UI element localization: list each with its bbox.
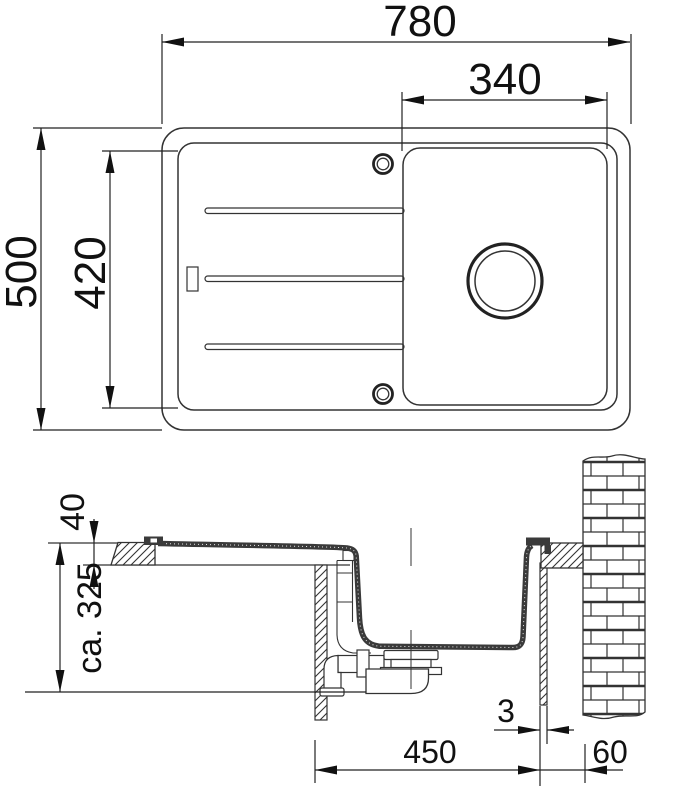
top-view bbox=[162, 128, 630, 430]
dim-label-gap: 3 bbox=[497, 693, 515, 729]
section-view bbox=[48, 455, 645, 720]
dim-label-cabinet-width: 450 bbox=[403, 734, 456, 770]
dimension-450-60: 450 60 bbox=[315, 734, 628, 783]
wall bbox=[583, 455, 645, 719]
countertop-left bbox=[111, 543, 155, 566]
cabinet-panel-left bbox=[315, 565, 327, 720]
dimension-340: 340 bbox=[402, 55, 607, 151]
dim-label-inner-depth: 420 bbox=[66, 236, 115, 309]
tap-hole-top bbox=[374, 155, 393, 174]
drain-trap bbox=[320, 650, 442, 696]
sink-bowl bbox=[403, 148, 607, 405]
dim-label-overall-depth: 500 bbox=[0, 235, 46, 308]
trap-body bbox=[366, 669, 429, 694]
dim-label-wall-clearance: 60 bbox=[592, 734, 628, 770]
overflow-slot bbox=[187, 267, 198, 291]
cabinet-panel-right bbox=[540, 563, 547, 705]
drain-hole bbox=[468, 244, 542, 318]
drawing-canvas: 780 340 500 420 bbox=[0, 0, 678, 811]
sink-rim-lip-left bbox=[144, 537, 163, 546]
trap-elbow bbox=[324, 656, 341, 691]
dim-label-overall-width: 780 bbox=[383, 0, 456, 46]
sink-installation-drawing: 780 340 500 420 bbox=[0, 0, 678, 811]
dimension-780: 780 bbox=[162, 0, 631, 124]
dim-label-bowl-width: 340 bbox=[468, 55, 541, 104]
dimension-420: 420 bbox=[66, 151, 178, 408]
drainboard-groove bbox=[205, 344, 404, 350]
sink-outer-edge bbox=[162, 128, 630, 430]
drainboard-groove bbox=[205, 276, 404, 282]
dim-label-mounting-depth: ca. 325 bbox=[71, 562, 109, 674]
tap-hole-bottom bbox=[374, 385, 393, 404]
dimension-3: 3 bbox=[494, 693, 574, 786]
dim-label-counter-thickness: 40 bbox=[54, 493, 92, 531]
drainboard-groove bbox=[205, 208, 404, 214]
